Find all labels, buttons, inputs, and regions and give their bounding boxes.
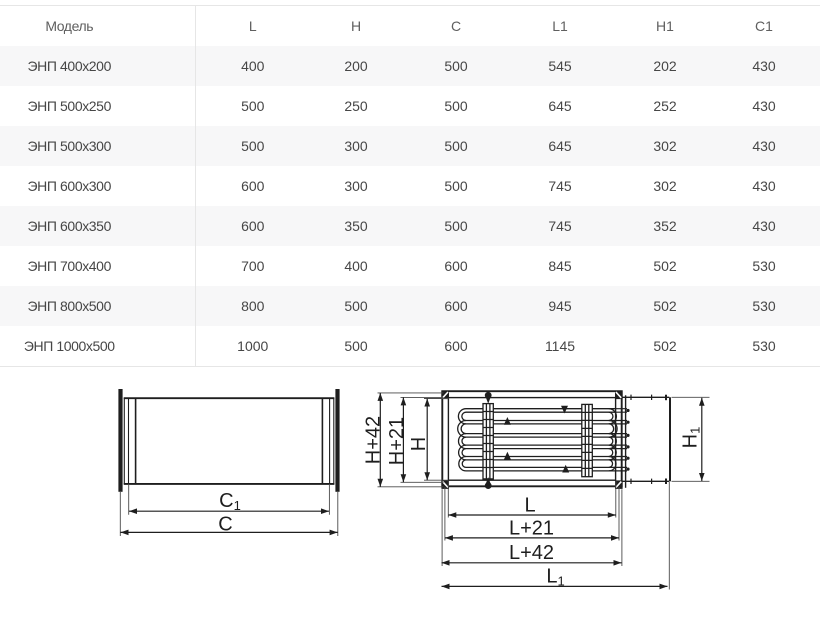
svg-text:C1: C1 — [219, 490, 241, 513]
svg-text:H+21: H+21 — [386, 417, 408, 465]
svg-text:H: H — [408, 437, 430, 451]
svg-text:L+42: L+42 — [509, 542, 554, 564]
svg-text:L: L — [524, 495, 535, 517]
svg-text:H1: H1 — [679, 427, 702, 449]
svg-text:H+42: H+42 — [363, 416, 385, 464]
svg-text:L+21: L+21 — [509, 517, 554, 539]
svg-text:C: C — [218, 514, 232, 536]
svg-text:L1: L1 — [546, 565, 564, 588]
